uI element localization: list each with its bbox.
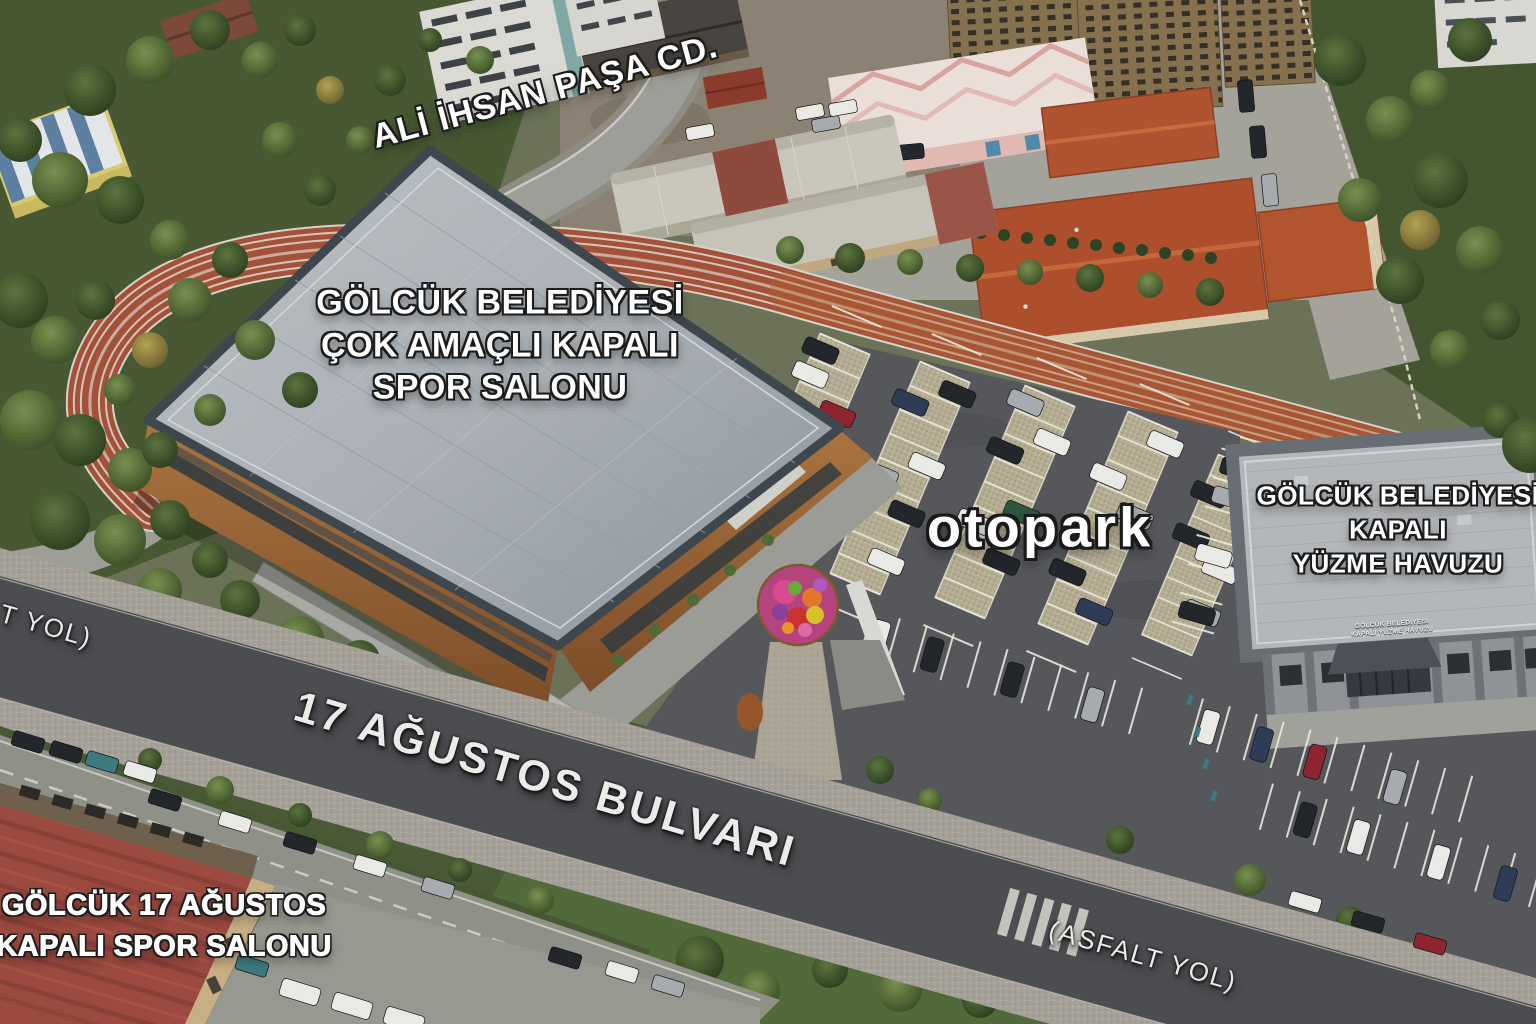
- flower-bed: [758, 565, 838, 645]
- main-hall-label-line3: SPOR SALONU: [316, 366, 683, 409]
- main-hall-label: GÖLCÜK BELEDİYESİ ÇOK AMAÇLI KAPALI SPOR…: [316, 281, 683, 409]
- old-hall-label-line2: KAPALI SPOR SALONU: [0, 926, 332, 967]
- aerial-photo-scene: ALİ İHSAN PAŞA CD. GÖLCÜK BELEDİYESİ ÇOK…: [0, 0, 1536, 1024]
- main-hall-label-line2: ÇOK AMAÇLI KAPALI: [316, 324, 683, 367]
- pool-label-line1: GÖLCÜK BELEDİYESİ: [1257, 479, 1536, 513]
- pool-label-line3: YÜZME HAVUZU: [1257, 547, 1536, 581]
- pool-building: [1232, 429, 1536, 750]
- pool-label-line2: KAPALI: [1257, 513, 1536, 547]
- old-hall-label: GÖLCÜK 17 AĞUSTOS KAPALI SPOR SALONU: [0, 885, 332, 966]
- old-hall-label-line1: GÖLCÜK 17 AĞUSTOS: [0, 885, 332, 926]
- main-hall-label-line1: GÖLCÜK BELEDİYESİ: [316, 281, 683, 324]
- pool-label: GÖLCÜK BELEDİYESİ KAPALI YÜZME HAVUZU: [1257, 479, 1536, 580]
- otopark-label: otopark: [927, 495, 1153, 560]
- autumn-shrub: [737, 693, 763, 731]
- apartment-tower: [1219, 0, 1315, 87]
